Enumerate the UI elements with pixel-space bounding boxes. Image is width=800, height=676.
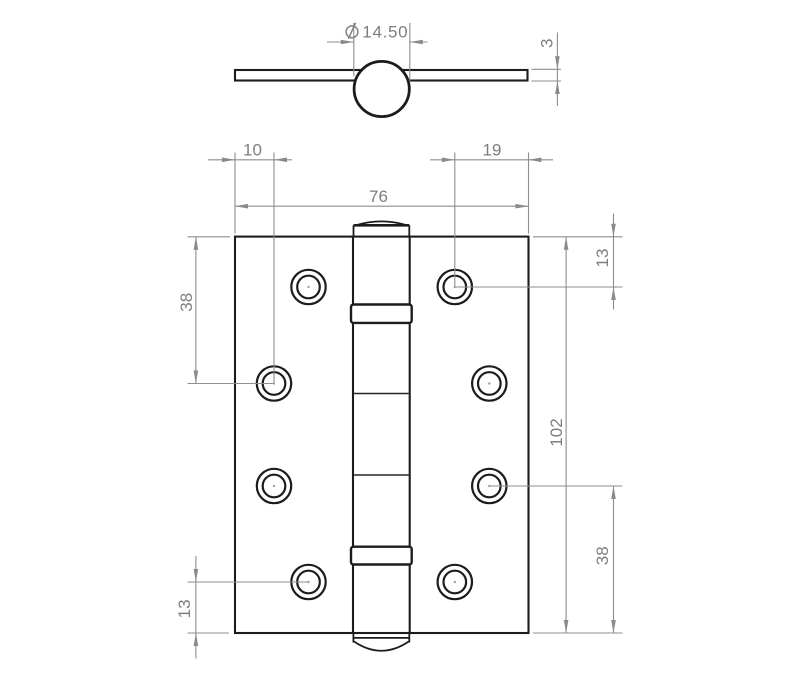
svg-text:13: 13 — [175, 599, 194, 618]
svg-text:3: 3 — [538, 39, 557, 48]
svg-text:14.50: 14.50 — [362, 22, 408, 41]
svg-text:76: 76 — [369, 187, 388, 206]
svg-text:102: 102 — [547, 418, 566, 446]
svg-text:10: 10 — [243, 141, 262, 160]
svg-text:38: 38 — [177, 293, 196, 312]
svg-text:13: 13 — [593, 249, 612, 268]
svg-text:19: 19 — [483, 141, 502, 160]
svg-text:38: 38 — [593, 546, 612, 565]
